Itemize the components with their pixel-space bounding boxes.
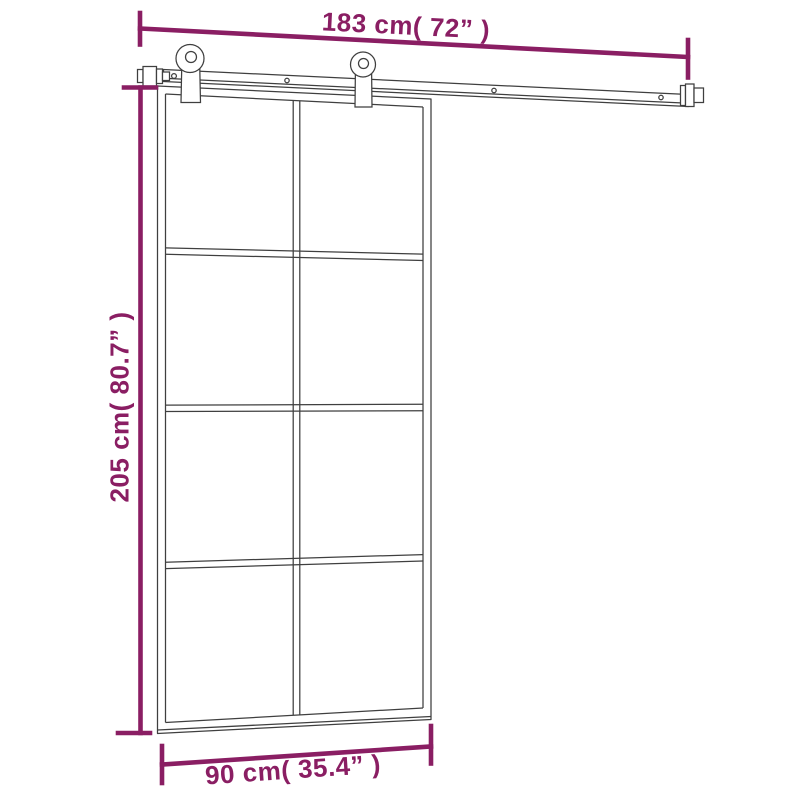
- rail-screw-icon: [492, 88, 496, 92]
- product-dimension-diagram: 183 cm( 72” ) 205 cm( 80.7” ) 90 cm( 35.…: [0, 0, 800, 800]
- roller-hub-icon: [359, 59, 369, 69]
- rail-screw-icon: [285, 78, 289, 82]
- door-panel: [158, 86, 432, 734]
- door-height-label: 205 cm( 80.7” ): [105, 311, 136, 502]
- roller-hub-icon: [186, 52, 197, 63]
- door-outline: [158, 86, 432, 734]
- rail-end-stop-right: [681, 84, 704, 107]
- screw-icon: [172, 74, 177, 79]
- rail-screw-icon: [659, 95, 663, 99]
